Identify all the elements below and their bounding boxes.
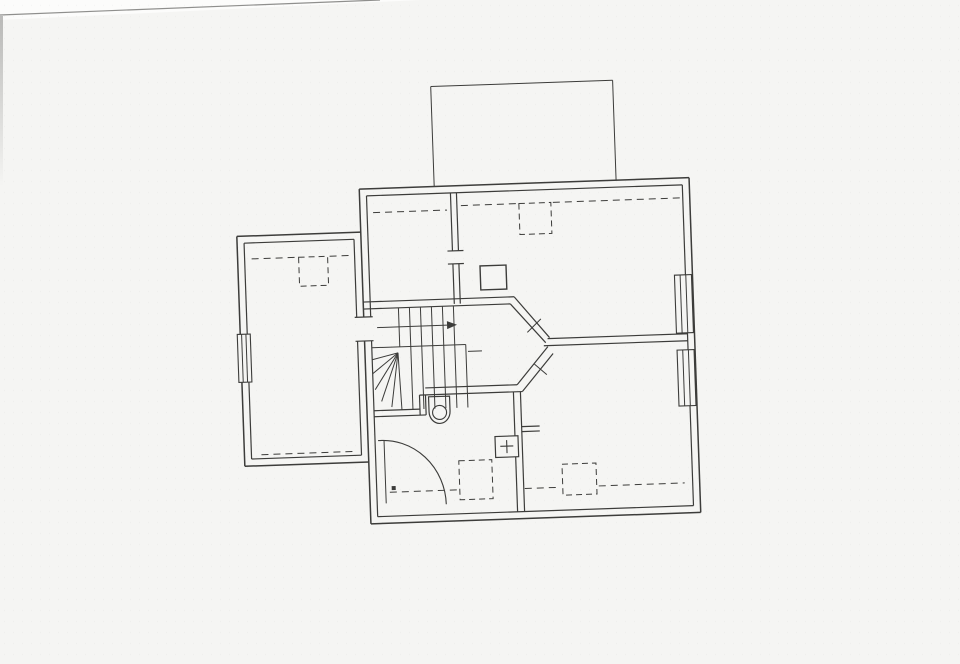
thin-detail-line: [431, 87, 434, 187]
wall-inner-line: [448, 264, 464, 265]
wall-inner-line: [548, 334, 688, 339]
wall-inner-line: [456, 193, 458, 251]
window-symbol: [677, 350, 696, 407]
wall-outer-line: [365, 341, 371, 524]
wall-outer-line: [245, 462, 369, 466]
thin-detail-line: [433, 346, 435, 409]
window-frame: [677, 350, 696, 407]
wall-inner-line: [249, 382, 252, 459]
wall-inner-line: [522, 431, 540, 432]
wall-inner-line: [447, 251, 463, 252]
stairs-arrow-icon: [447, 321, 457, 329]
wall-inner-line: [425, 385, 517, 388]
wall-inner-line: [450, 193, 452, 251]
knee-wall-dashed-line: [599, 483, 685, 486]
plan-group: [229, 78, 701, 529]
wall-outer-line: [359, 178, 689, 190]
wall-inner-line: [425, 395, 426, 415]
thin-detail-line: [613, 80, 616, 180]
knee-wall-dashed-line: [525, 487, 561, 488]
wall-inner-line: [244, 243, 247, 334]
window-frame: [237, 334, 252, 382]
paper-edge-line: [0, 0, 380, 15]
wall-inner-line: [354, 239, 357, 317]
roof-window-dashed-rect: [562, 463, 597, 495]
thin-detail-line: [377, 325, 447, 327]
wall-inner-line: [374, 415, 426, 417]
wall-outer-line: [689, 178, 701, 513]
wall-inner-line: [544, 341, 688, 346]
knee-wall-dashed-line: [390, 490, 458, 492]
knee-wall-dashed-line: [330, 256, 349, 257]
thin-detail-line: [422, 346, 424, 409]
scanned-floor-plan-page: { "page": { "paper_color": "#f5f5f3", "s…: [0, 0, 960, 664]
wall-inner-line: [419, 395, 420, 415]
wall-inner-line: [459, 264, 460, 304]
thin-detail-line: [398, 353, 402, 410]
roof-window-dashed-rect: [299, 256, 329, 286]
wall-inner-line: [358, 341, 362, 455]
window-symbol: [237, 334, 252, 382]
thin-detail-line: [411, 346, 413, 409]
knee-wall-dashed-line: [461, 204, 517, 206]
thin-detail-line: [455, 345, 457, 408]
wall-inner-line: [514, 296, 549, 339]
wall-outer-line: [242, 382, 245, 466]
knee-wall-dashed-line: [252, 257, 297, 259]
knee-wall-dashed-line: [261, 451, 353, 454]
wall-inner-line: [356, 341, 374, 342]
door-swing-arc: [378, 438, 446, 506]
thin-detail-line: [372, 344, 466, 347]
floor-plan-svg: [0, 0, 960, 664]
knee-wall-dashed-line: [553, 198, 680, 202]
wall-outer-line: [237, 236, 240, 334]
wall-inner-line: [453, 264, 454, 304]
wall-inner-line: [510, 303, 545, 344]
wall-inner-line: [244, 239, 354, 243]
wall-inner-line: [372, 341, 378, 517]
wall-outer-line: [359, 189, 363, 317]
thin-detail-line: [384, 440, 386, 503]
roof-window-dashed-rect: [459, 460, 493, 500]
wall-inner-line: [522, 426, 540, 427]
wall-inner-line: [252, 455, 362, 459]
wall-outer-line: [237, 232, 361, 236]
knee-wall-dashed-line: [373, 210, 447, 213]
wall-inner-line: [682, 185, 693, 506]
wall-inner-line: [355, 317, 373, 318]
toilet-bowl-circle: [432, 405, 446, 419]
wall-inner-line: [363, 297, 514, 302]
wall-inner-line: [520, 392, 524, 512]
thin-detail-line: [466, 344, 468, 407]
wall-inner-line: [363, 304, 510, 309]
window-frame: [674, 275, 693, 334]
window-symbol: [674, 275, 693, 334]
wall-inner-line: [366, 196, 370, 317]
chimney-shaft: [480, 265, 507, 290]
roof-window-dashed-rect: [519, 202, 552, 234]
thin-detail-line: [444, 345, 446, 408]
hinge-dot: [392, 486, 396, 490]
wall-outer-line: [371, 512, 701, 524]
thin-detail-line: [431, 80, 613, 86]
